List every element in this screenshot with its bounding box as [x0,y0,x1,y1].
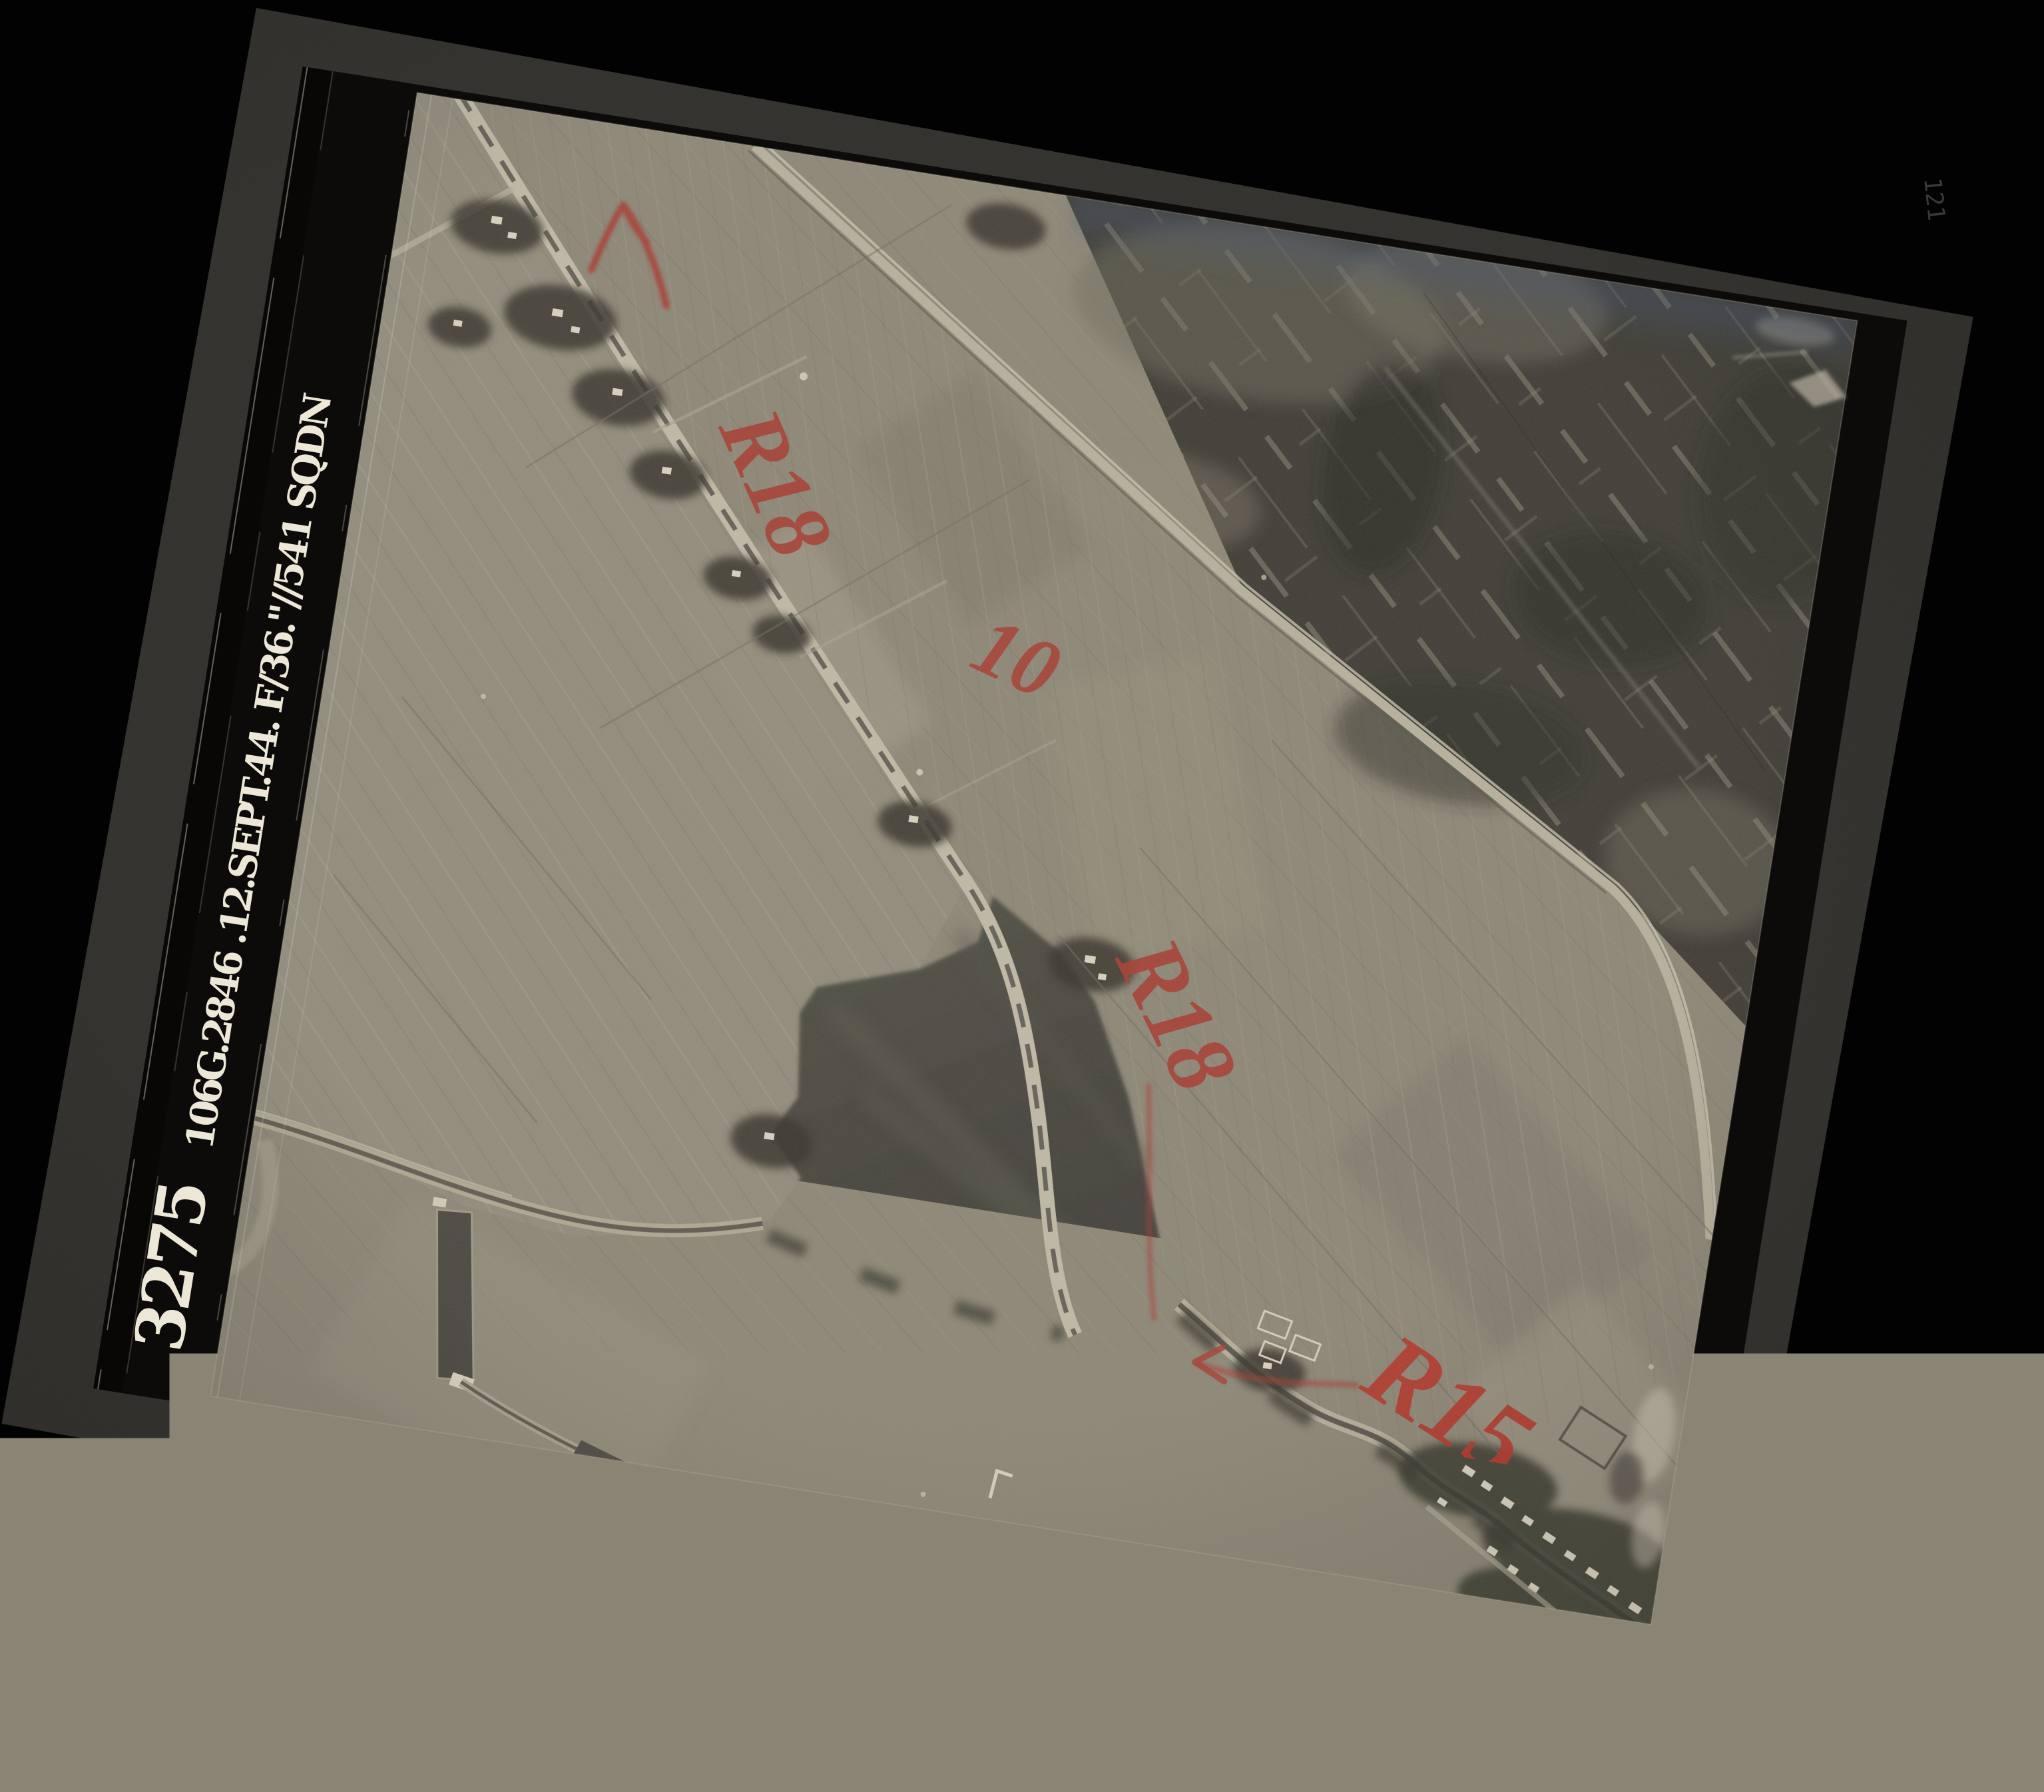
scan-background: 121 106G.2846 .12.SEPT.44. F/36."//541 S… [0,0,2044,1792]
photo-vignette [210,93,1857,1624]
faint-corner-mark: 121 [1918,176,1950,222]
